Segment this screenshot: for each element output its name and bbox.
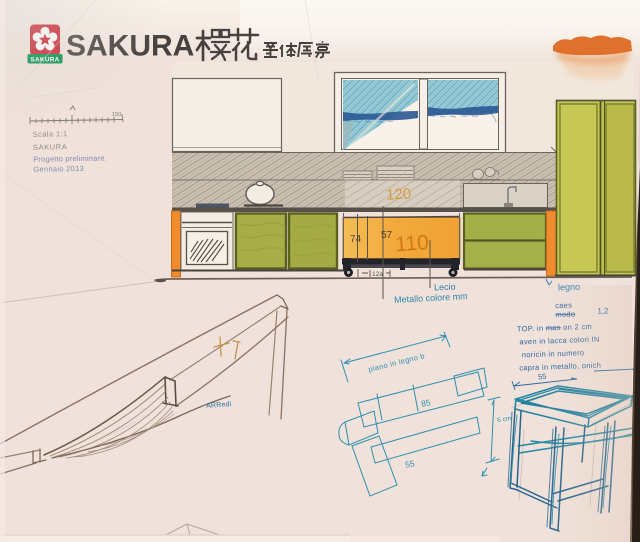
svg-text:Scala 1:1: Scala 1:1 [33,129,68,139]
svg-text:85: 85 [420,397,431,409]
svg-text:Lecio: Lecio [434,282,456,293]
svg-text:Gennaio 2013: Gennaio 2013 [33,164,84,174]
svg-text:57: 57 [381,230,393,241]
svg-text:Progetto preliminare.: Progetto preliminare. [33,154,107,164]
svg-text:150: 150 [112,112,121,118]
svg-text:74: 74 [350,234,362,245]
svg-text:12a: 12a [372,271,383,278]
svg-text:SAKURA: SAKURA [33,142,68,152]
svg-text:120: 120 [386,185,412,203]
svg-text:110: 110 [394,231,429,256]
svg-text:55: 55 [404,458,415,470]
